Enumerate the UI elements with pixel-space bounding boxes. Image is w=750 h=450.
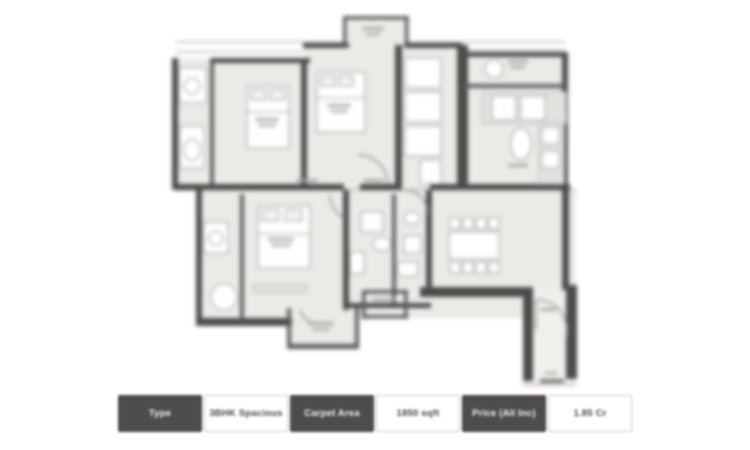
type-value-chip: 3BHK Spacious <box>204 395 288 432</box>
floorplan-svg <box>0 0 750 392</box>
carpet-area-value-chip: 1850 sqft <box>376 395 460 432</box>
screen: Type 3BHK Spacious Carpet Area 1850 sqft… <box>0 0 750 450</box>
carpet-area-label-chip: Carpet Area <box>290 395 374 432</box>
info-bar: Type 3BHK Spacious Carpet Area 1850 sqft… <box>118 395 632 432</box>
floorplan <box>0 0 750 392</box>
type-label-chip: Type <box>118 395 202 432</box>
price-label-chip: Price (All Inc) <box>462 395 546 432</box>
floor-areas <box>175 18 576 386</box>
price-value-chip: 1.85 Cr <box>548 395 632 432</box>
